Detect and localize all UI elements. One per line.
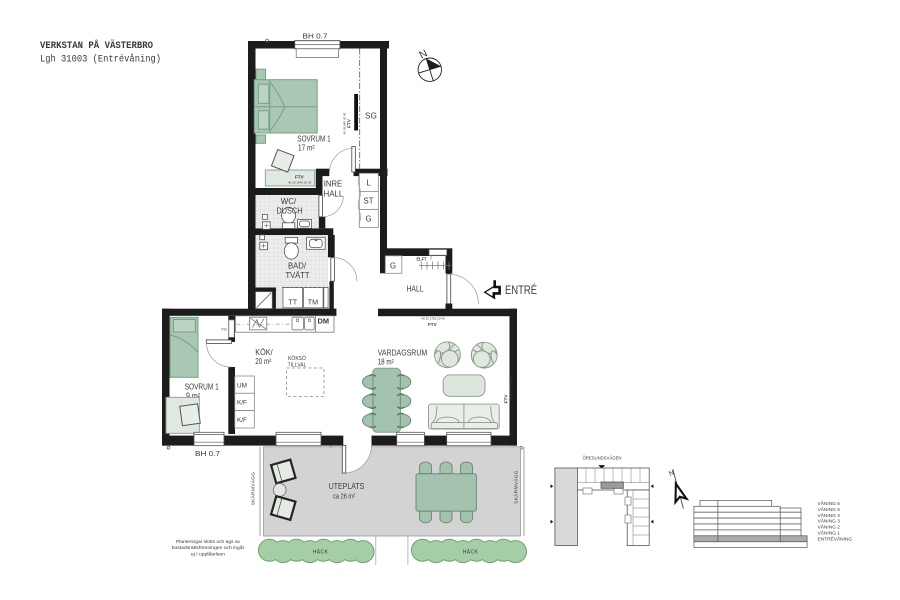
svg-text:ENTRÉ: ENTRÉ bbox=[505, 284, 537, 297]
svg-text:TM: TM bbox=[308, 298, 318, 307]
svg-text:SKÄRMVÄGG: SKÄRMVÄGG bbox=[250, 472, 257, 506]
svg-text:BH 0.7: BH 0.7 bbox=[303, 32, 328, 41]
svg-text:HÄCK: HÄCK bbox=[313, 548, 329, 555]
svg-text:FTV: FTV bbox=[428, 322, 438, 327]
svg-text:18 m²: 18 m² bbox=[378, 358, 394, 367]
svg-text:HALL: HALL bbox=[324, 189, 344, 198]
svg-text:40 20 1540 20 40: 40 20 1540 20 40 bbox=[288, 180, 312, 184]
svg-text:VÅNING 1: VÅNING 1 bbox=[818, 530, 841, 537]
svg-text:FTV: FTV bbox=[347, 118, 352, 128]
svg-text:VÅNING 6: VÅNING 6 bbox=[818, 500, 841, 507]
svg-text:VERKSTAN PÅ VÄSTERBRO: VERKSTAN PÅ VÄSTERBRO bbox=[40, 39, 153, 52]
svg-text:VARDAGSRUM: VARDAGSRUM bbox=[378, 349, 428, 358]
svg-text:Planteringar sköts och ägs av: Planteringar sköts och ägs av bbox=[176, 539, 241, 545]
svg-text:ÖRESUNDSVÄGEN: ÖRESUNDSVÄGEN bbox=[583, 455, 622, 462]
svg-text:ENTRÉVÅNING: ENTRÉVÅNING bbox=[818, 535, 853, 542]
svg-text:DM: DM bbox=[318, 317, 330, 326]
svg-text:KÖK/: KÖK/ bbox=[255, 347, 273, 357]
svg-text:INRE: INRE bbox=[324, 180, 343, 189]
svg-text:L: L bbox=[366, 179, 371, 188]
svg-text:DUSCH: DUSCH bbox=[277, 206, 303, 215]
svg-text:40 20 980 20 40: 40 20 980 20 40 bbox=[343, 112, 347, 134]
svg-text:40 20 2755 20 40: 40 20 2755 20 40 bbox=[509, 376, 513, 400]
svg-text:FS: FS bbox=[222, 327, 227, 332]
svg-text:G: G bbox=[390, 262, 396, 271]
svg-text:SOVRUM 1: SOVRUM 1 bbox=[185, 383, 219, 392]
svg-text:Lgh 31003 (Entrévåning): Lgh 31003 (Entrévåning) bbox=[40, 53, 161, 66]
svg-text:WC/: WC/ bbox=[281, 197, 297, 206]
svg-text:G: G bbox=[365, 215, 371, 224]
svg-text:K/F: K/F bbox=[237, 400, 247, 407]
svg-text:TVÄTT: TVÄTT bbox=[286, 271, 310, 280]
svg-text:FTV: FTV bbox=[295, 175, 305, 180]
svg-text:SKÄRMVÄGG: SKÄRMVÄGG bbox=[513, 470, 520, 504]
svg-text:ej i upplåtelsen: ej i upplåtelsen bbox=[191, 551, 225, 558]
svg-text:FTV: FTV bbox=[504, 394, 509, 404]
svg-text:17 m²: 17 m² bbox=[298, 144, 315, 153]
svg-text:BAD/: BAD/ bbox=[288, 262, 307, 271]
svg-text:UM: UM bbox=[237, 383, 247, 390]
svg-text:KÖKSÖ: KÖKSÖ bbox=[288, 355, 306, 362]
svg-text:TT: TT bbox=[288, 298, 297, 307]
svg-text:bostadsrättsföreningen och ing: bostadsrättsföreningen och ingår bbox=[172, 544, 245, 551]
svg-text:SOVRUM 1: SOVRUM 1 bbox=[297, 135, 331, 144]
svg-text:VÅNING 4: VÅNING 4 bbox=[818, 512, 841, 519]
svg-text:40 20 2755 20 40: 40 20 2755 20 40 bbox=[421, 317, 445, 321]
svg-text:VÅNING 2: VÅNING 2 bbox=[818, 524, 841, 531]
svg-text:ca 26 m²: ca 26 m² bbox=[333, 494, 356, 501]
svg-text:UTEPLATS: UTEPLATS bbox=[329, 482, 365, 491]
svg-text:20 m²: 20 m² bbox=[255, 357, 271, 366]
svg-text:BH 0.7: BH 0.7 bbox=[195, 449, 220, 458]
svg-text:VÅNING 5: VÅNING 5 bbox=[818, 506, 841, 513]
svg-text:ST: ST bbox=[364, 197, 374, 206]
svg-text:K/F: K/F bbox=[237, 417, 247, 424]
svg-text:VÅNING 3: VÅNING 3 bbox=[818, 518, 841, 525]
svg-text:TILLVAL: TILLVAL bbox=[288, 363, 307, 369]
svg-text:ELFT: ELFT bbox=[417, 256, 427, 261]
svg-text:HALL: HALL bbox=[407, 285, 424, 294]
svg-text:HÄCK: HÄCK bbox=[463, 548, 479, 555]
svg-text:SG: SG bbox=[365, 112, 377, 121]
